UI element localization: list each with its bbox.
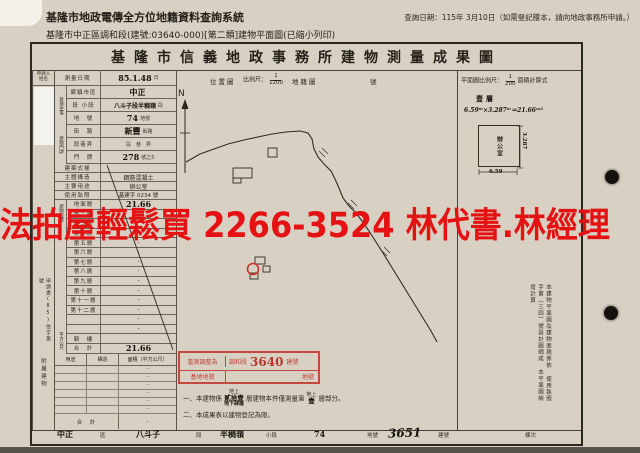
area-calc-label: 面積計算式 [518, 78, 548, 85]
section-value: 八斗子段半稠嶺 [114, 101, 156, 110]
application-file-note: 申請書(85)信字第 號 [38, 278, 52, 352]
annex-row: · [55, 374, 176, 382]
scanned-document-page: 基隆市地政電傳全方位地籍資料查詢系統 查詢日期：115年 3月10日（如需登記謄… [0, 0, 640, 453]
floor-row: 騎 樓 [67, 334, 176, 344]
map-right-divider [457, 70, 458, 430]
annex-area-value: · [119, 406, 176, 413]
stamp-section: 調和段 [229, 357, 247, 366]
attr-row: 主體構造 鋼筋混凝土 [55, 173, 176, 182]
door-plate-suffix: 號之5 [141, 154, 154, 161]
annex-total-label: 合 計 [55, 414, 119, 429]
scan-bottom-edge [0, 447, 640, 453]
district-value: 中正 [130, 87, 146, 98]
plan-scale-header: 平面圖比例尺：1200面積計算式 [461, 75, 548, 87]
stamp-unit-bottom: 地號 [302, 372, 314, 381]
footer-lot-number: 74 [314, 429, 325, 439]
footer-section: 八斗子 [136, 429, 160, 440]
plan-floor-label: 壹層 [476, 94, 496, 104]
footer-district-suffix: 區 [100, 431, 106, 439]
survey-date-suffix: 日 [154, 74, 159, 81]
floor-value: · [101, 258, 176, 267]
building-footprint [268, 148, 277, 157]
floor-value: · [101, 325, 176, 334]
footer-building-number: 3651 [388, 425, 422, 440]
punch-hole [605, 170, 619, 184]
north-arrow-label: N [178, 89, 185, 99]
section-suffix: 段 [158, 102, 163, 109]
lot-number-value: 74 [127, 113, 138, 123]
lot-number-suffix: 地號 [140, 115, 150, 122]
structure-label: 主體構造 [55, 173, 101, 181]
survey-date-value: 85.1.48 [118, 73, 151, 83]
address-row: 門 牌 278 號之5 [67, 151, 176, 164]
building-footprint [233, 168, 252, 178]
annex-area-value: · [119, 398, 176, 405]
floor-value: · [101, 286, 176, 295]
site-row: 段 小段 八斗子段半稠嶺 段 [67, 99, 176, 112]
total-label: 合 計 [67, 344, 101, 353]
door-plate-value: 278 [123, 152, 140, 162]
annex-total-value: · [119, 414, 176, 429]
note1-measured-value: 壹 [308, 398, 315, 405]
floor-total-row: 合 計 21.66 [67, 344, 176, 354]
address-group-strip: 建物門牌 [55, 125, 67, 164]
footer-subsection: 半稠嶺 [220, 429, 244, 440]
annex-table: 用途 構造 面積（平方公尺） · · · · · · 合 計 · [55, 354, 176, 429]
floor-label [67, 315, 101, 324]
building-footprint [255, 257, 265, 264]
plan-side-notes: 本建物平面圖及建物面積係依 使用執照字第（三四）號設計圖晒成 本平面圖繪增計算 [528, 284, 552, 404]
plan-width-dimension: 6.59 [489, 169, 502, 175]
resurvey-stamp: 重測調整為 調和段 3640 建號 基地地號 地號 [178, 351, 320, 384]
area-unit-label: 平方公尺 [58, 332, 64, 350]
site-row: 地 號 74 地號 [67, 112, 176, 125]
annex-area-header: 面積（平方公尺） [119, 354, 176, 365]
attr-row: 建築式樣 [55, 164, 176, 173]
punch-hole [604, 306, 618, 320]
annex-row: · [55, 382, 176, 390]
auction-watermark: 法拍屋輕鬆買 2266-3524 林代書.林經理 [0, 198, 640, 248]
style-label: 建築式樣 [55, 164, 101, 172]
annex-header-row: 用途 構造 面積（平方公尺） [55, 354, 176, 366]
street-value: 新豐 [124, 126, 140, 137]
query-date: 查詢日期：115年 3月10日（如需登記謄本，請向地政事務所申請。） [404, 12, 634, 23]
stamp-left-bottom: 基地地號 [180, 371, 226, 382]
floor-label: 第八層 [67, 267, 101, 276]
applicant-name-label: 姓名 [39, 78, 48, 83]
document-subtitle: 基隆市中正區調和段(建號:03640-000)[第二類]建物平面圖(已縮小列印) [46, 28, 335, 41]
floor-value: · [101, 315, 176, 324]
attr-row: 主要用途 辦公室 [55, 182, 176, 191]
annex-area-value: · [119, 390, 176, 397]
footer-top-rule [32, 430, 581, 431]
plan-scale-denominator: 200 [505, 82, 516, 88]
total-value: 21.66 [101, 344, 176, 353]
survey-date-row: 測量日期 85.1.48 日 [55, 70, 176, 86]
building-footprint [233, 178, 241, 183]
document-title: 基隆市信義地政事務所建物測量成果圖 [32, 47, 581, 67]
annex-area-value: · [119, 382, 176, 389]
note1-middle: 層建物本件僅測量第 [246, 394, 305, 402]
address-row: 段巷弄 段 巷 弄 [67, 138, 176, 151]
annex-structure-header: 構造 [87, 354, 119, 365]
arcade-label: 騎 樓 [67, 334, 101, 343]
floor-value: · [101, 248, 176, 257]
address-row: 街 路 新豐 街路 [67, 125, 176, 138]
floor-row: 第八層 · [67, 267, 176, 277]
stamp-building-number: 3640 [250, 355, 283, 369]
site-group-strip: 基地坐落 [55, 86, 67, 125]
note-line-2: 二、本成果表以建物登記為限。 [183, 409, 274, 419]
arcade-value [101, 334, 176, 343]
annex-total-row: 合 計 · [55, 414, 176, 429]
floor-row: 第六層 · [67, 248, 176, 258]
survey-date-label: 測量日期 [55, 70, 101, 85]
site-group-label: 基地坐落 [58, 97, 64, 115]
section-label: 段 小段 [67, 99, 101, 111]
footer-lot-suffix: 地號 [367, 431, 378, 439]
floor-row: 第十一層 · [67, 296, 176, 306]
annex-row: · [55, 406, 176, 414]
lane-alley-suffix: 段 巷 弄 [126, 141, 151, 148]
scan-corner-artifact [0, 0, 42, 26]
floor-label: 第十層 [67, 286, 101, 295]
annex-row: · [55, 390, 176, 398]
note1-suffix: 層部分。 [319, 394, 345, 402]
redacted-name-patch [34, 87, 54, 145]
floor-label: 第十二層 [67, 306, 101, 315]
floor-row: 第十層 · [67, 286, 176, 296]
floor-value: · [101, 267, 176, 276]
note-line-1: 一、本建物係地上貳拾壹地下肆層層建物本件僅測量第地上壹層部分。 [183, 390, 345, 407]
floor-row: 第七層 · [67, 258, 176, 268]
annex-area-value: · [119, 366, 176, 373]
structure-value: 鋼筋混凝土 [101, 173, 176, 181]
annex-usage-header: 用途 [55, 354, 87, 365]
floor-label: 第七層 [67, 258, 101, 267]
form-left-column: 申請人 姓名 申請書(85)信字第 號 附屬建物 [33, 70, 55, 430]
plan-scale-label: 平面圖比例尺： [461, 78, 503, 85]
street-suffix: 街路 [142, 128, 152, 135]
floor-value: · [101, 306, 176, 315]
building-footprint [263, 266, 270, 272]
footer-district: 中正 [57, 429, 73, 440]
street-label: 街 路 [67, 125, 101, 137]
address-group-label: 建物門牌 [58, 136, 64, 154]
lane-alley-label: 段巷弄 [67, 138, 101, 150]
lot-number-label: 地 號 [67, 112, 101, 124]
note1-prefix: 一、本建物係 [183, 394, 222, 402]
note1-below: 地下肆層 [224, 402, 244, 407]
stamp-unit-top: 建號 [286, 357, 298, 366]
footer-subsection-suffix: 小段 [266, 431, 277, 439]
building-survey-form: 申請人 姓名 申請書(85)信字第 號 附屬建物 測量日期 85.1.48 日 … [32, 70, 177, 430]
floor-label: 第六層 [67, 248, 101, 257]
floor-label: 第九層 [67, 277, 101, 286]
floor-label [67, 325, 101, 334]
floor-value: · [101, 277, 176, 286]
usage-label: 主要用途 [55, 182, 101, 190]
floor-row: · [67, 325, 176, 335]
side-note: 本建物平面圖及建物面積係依 [545, 284, 551, 369]
floor-value: · [101, 296, 176, 305]
floor-row: 第十二層 · [67, 306, 176, 316]
annex-row: · [55, 366, 176, 374]
annex-area-value: · [119, 374, 176, 381]
floor-row: 第九層 · [67, 277, 176, 287]
footer-building-suffix: 建號 [438, 431, 449, 439]
area-calculation-formula: 6.59ᵐ×3.287ᵐ＝21.66ᵐ² [464, 105, 543, 114]
usage-value: 辦公室 [101, 182, 176, 190]
site-row: 鄉鎮市區 中正 [67, 86, 176, 99]
district-label: 鄉鎮市區 [67, 86, 101, 98]
door-plate-label: 門 牌 [67, 151, 101, 163]
style-value [101, 164, 176, 172]
annex-row: · [55, 398, 176, 406]
system-title: 基隆市地政電傳全方位地籍資料查詢系統 [46, 9, 244, 25]
stamp-left-top: 重測調整為 [180, 356, 226, 367]
annex-group-label: 附屬建物 [39, 358, 47, 426]
footer-section-suffix: 段 [196, 431, 202, 439]
floor-row: · [67, 315, 176, 325]
footer-block-suffix: 棟次 [525, 431, 536, 439]
floor-label: 第十一層 [67, 296, 101, 305]
